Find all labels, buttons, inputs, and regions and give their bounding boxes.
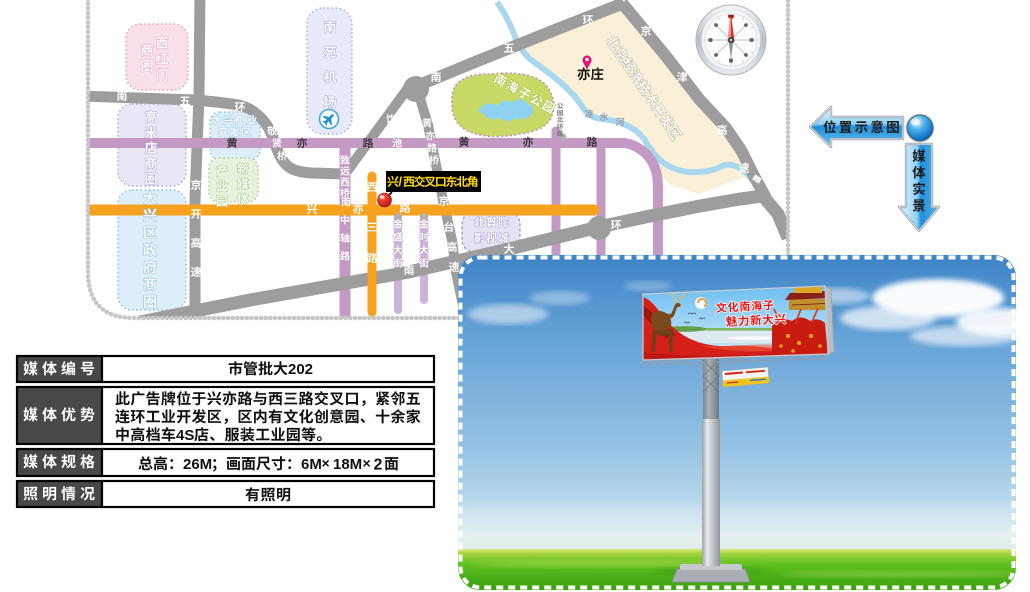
- svg-text:2: 2: [374, 457, 383, 474]
- svg-text:202: 202: [288, 361, 313, 378]
- svg-text:26M: 26M: [183, 456, 212, 473]
- svg-text:×: ×: [322, 455, 330, 471]
- svg-text:6M: 6M: [301, 456, 322, 473]
- svg-text:4S: 4S: [176, 427, 194, 444]
- svg-text:/: /: [399, 174, 403, 189]
- svg-text:18M: 18M: [333, 456, 362, 473]
- svg-text:×: ×: [363, 455, 371, 471]
